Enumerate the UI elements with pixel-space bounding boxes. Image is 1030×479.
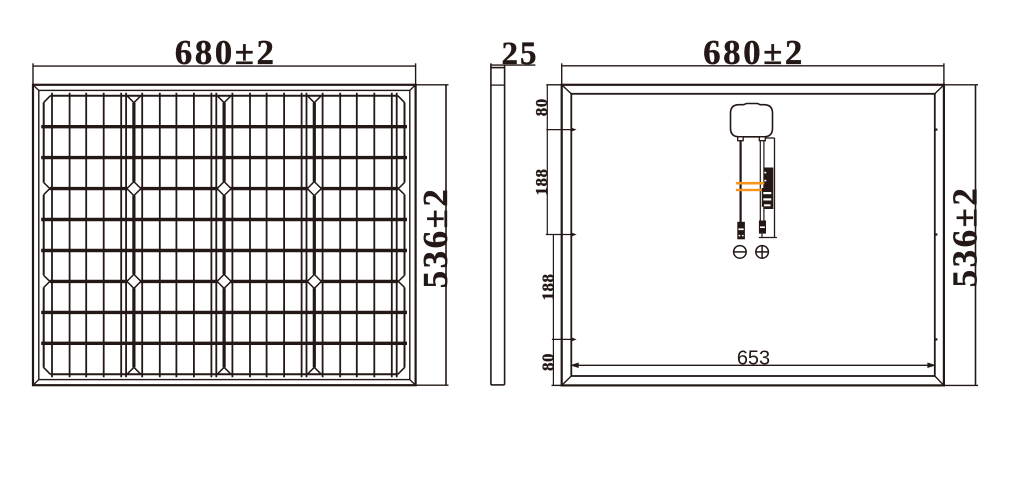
svg-text:80: 80 [532, 98, 551, 116]
svg-text:25: 25 [502, 36, 539, 72]
svg-text:80: 80 [539, 353, 558, 371]
svg-text:188: 188 [532, 169, 551, 196]
svg-text:653: 653 [737, 347, 770, 369]
svg-text:680±2: 680±2 [703, 33, 805, 72]
svg-text:680±2: 680±2 [175, 33, 277, 72]
svg-text:536±2: 536±2 [946, 186, 985, 288]
svg-text:536±2: 536±2 [416, 187, 455, 289]
svg-text:188: 188 [539, 274, 558, 301]
